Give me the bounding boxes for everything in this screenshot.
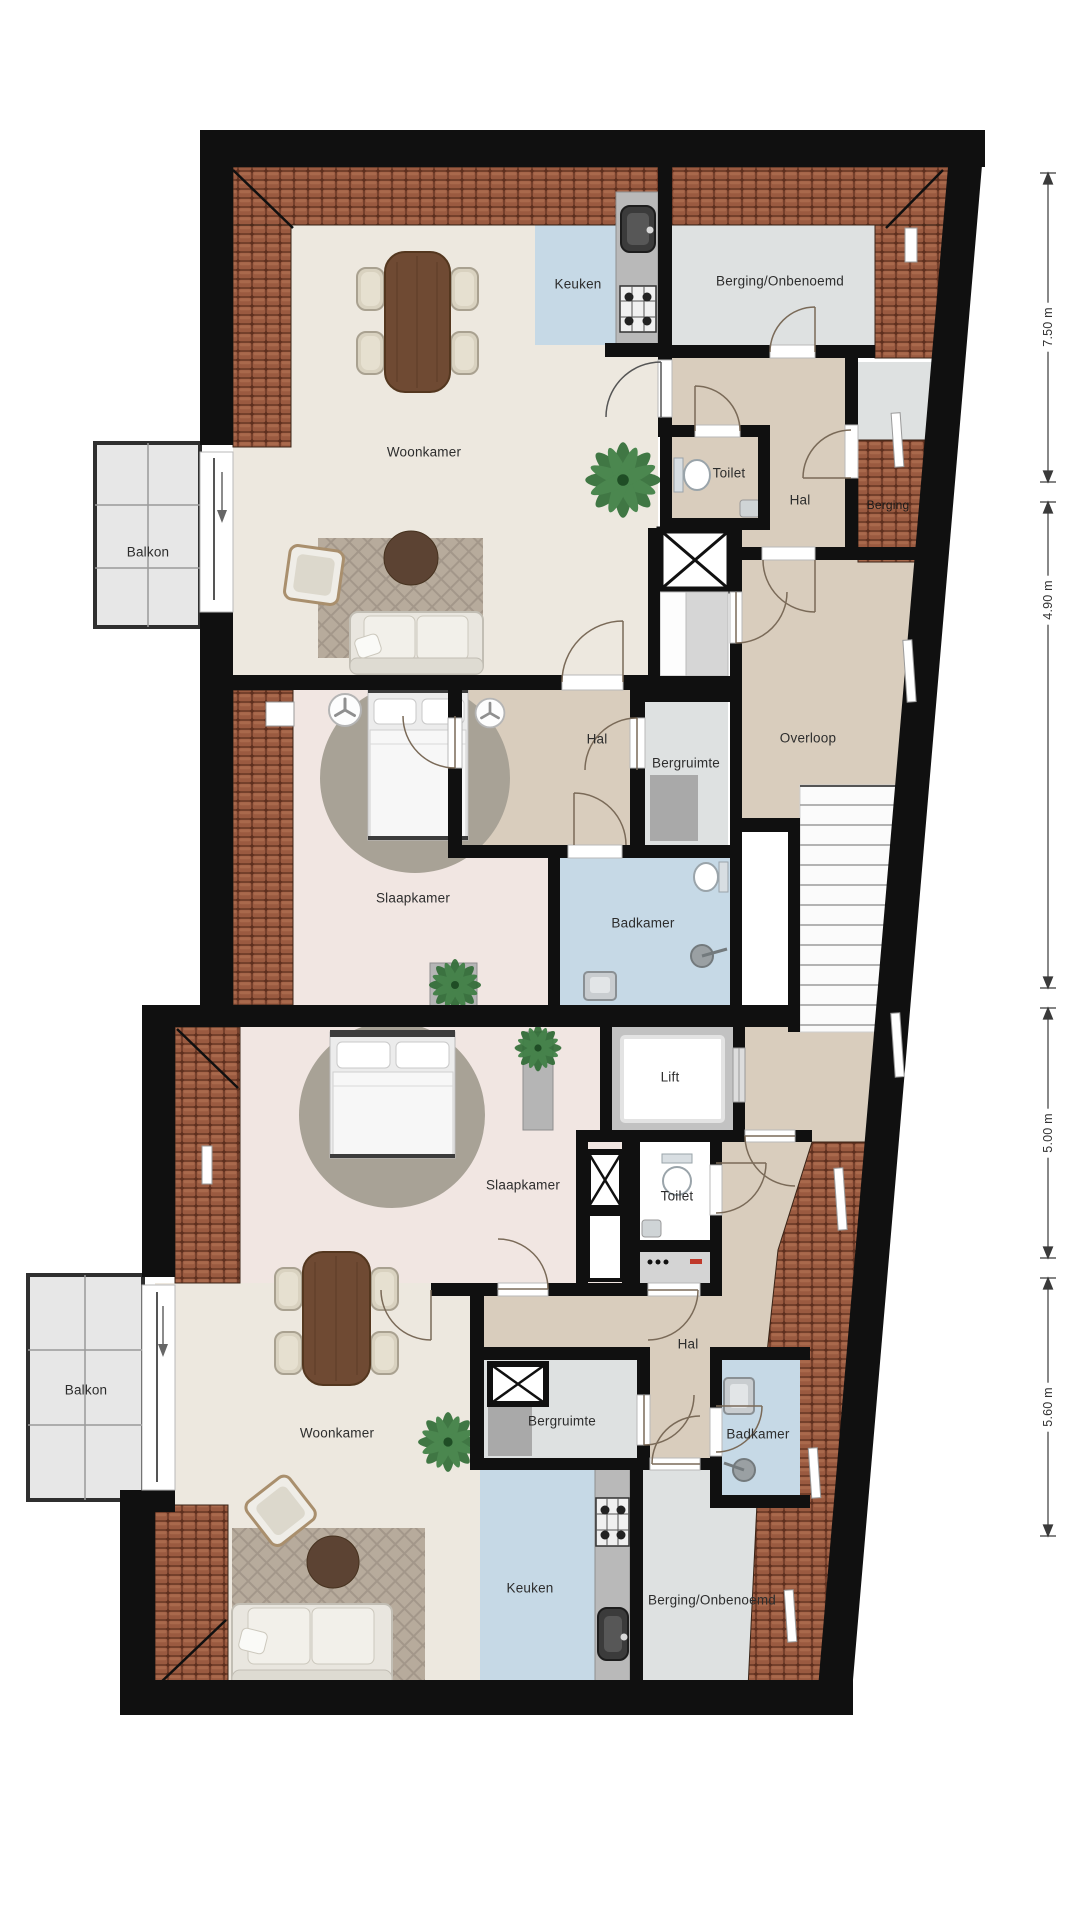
room-label-slaapkamer-2: Slaapkamer <box>486 1178 560 1193</box>
toilet-fixture-1 <box>674 458 710 492</box>
room-label-hal-1: Hal <box>587 732 608 747</box>
room-label-bergruimte-1: Bergruimte <box>652 756 720 771</box>
room-label-balkon-2: Balkon <box>65 1383 107 1398</box>
dimension-label-4-90-m: 4.90 m <box>1040 575 1056 624</box>
room-label-balkon-1: Balkon <box>127 545 169 560</box>
room-label-badkamer-1: Badkamer <box>611 916 674 931</box>
room-label-keuken-1: Keuken <box>555 277 602 292</box>
room-label-slaapkamer-1: Slaapkamer <box>376 891 450 906</box>
room-label-berging-onbenoemd-2: Berging/Onbenoemd <box>648 1593 776 1608</box>
cabinet-2 <box>488 1406 532 1456</box>
kitchen-counter-2 <box>595 1468 630 1700</box>
sink-1 <box>740 500 760 517</box>
sofa-1 <box>350 612 483 674</box>
kitchen-counter-1 <box>616 192 658 352</box>
bed-2 <box>330 1030 455 1158</box>
room-label-hal-2: Hal <box>678 1337 699 1352</box>
floor-plan-canvas <box>0 0 1080 1920</box>
room-label-keuken-2: Keuken <box>507 1581 554 1596</box>
lift-door <box>733 1048 745 1102</box>
room-label-badkamer-2: Badkamer <box>726 1427 789 1442</box>
armchair-1 <box>284 545 345 606</box>
room-label-overloop: Overloop <box>780 731 836 746</box>
dimension-label-5-00-m: 5.00 m <box>1040 1108 1056 1157</box>
floor-plan: Woonkamer Keuken Berging/Onbenoemd Toile… <box>0 0 1080 1920</box>
dimension-lines <box>1040 173 1056 1536</box>
sofa-2 <box>232 1604 392 1688</box>
room-label-woonkamer-2: Woonkamer <box>300 1426 374 1441</box>
meter-cabinet-2 <box>640 1252 722 1283</box>
side-table-2 <box>307 1536 359 1588</box>
room-label-woonkamer-1: Woonkamer <box>387 445 461 460</box>
side-table-1 <box>384 531 438 585</box>
cabinet-1 <box>650 775 698 841</box>
room-label-lift: Lift <box>661 1070 680 1085</box>
room-label-toilet-1: Toilet <box>713 466 746 481</box>
dimension-label-7-50-m: 7.50 m <box>1040 302 1056 351</box>
dimension-label-5-60-m: 5.60 m <box>1040 1382 1056 1431</box>
room-label-berging-zolder: Berging <box>867 498 910 512</box>
room-label-hal-entree-1: Hal <box>790 493 811 508</box>
room-label-toilet-2: Toilet <box>661 1189 694 1204</box>
room-label-berging-onbenoemd-1: Berging/Onbenoemd <box>716 274 844 289</box>
room-label-bergruimte-2: Bergruimte <box>528 1414 596 1429</box>
